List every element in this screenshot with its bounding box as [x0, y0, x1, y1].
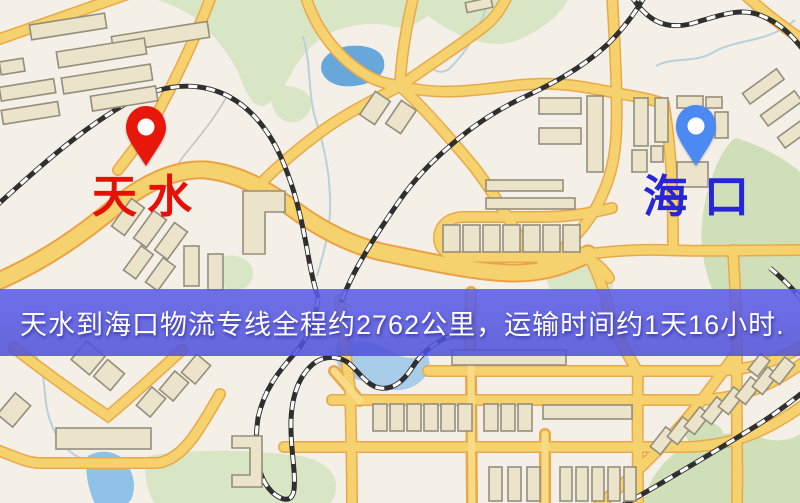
route-info-text: 天水到海口物流专线全程约2762公里，运输时间约1天16小时.: [0, 303, 785, 342]
route-info-banner: 天水到海口物流专线全程约2762公里，运输时间约1天16小时.: [0, 289, 800, 356]
origin-pin-icon[interactable]: [124, 104, 168, 168]
origin-label: 天水: [92, 175, 202, 220]
destination-pin-icon[interactable]: [674, 103, 718, 168]
destination-label: 海口: [643, 175, 765, 220]
map-screenshot: 天水 海口 天水到海口物流专线全程约2762公里，运输时间约1天16小时.: [0, 0, 800, 503]
map-canvas[interactable]: [0, 0, 800, 503]
